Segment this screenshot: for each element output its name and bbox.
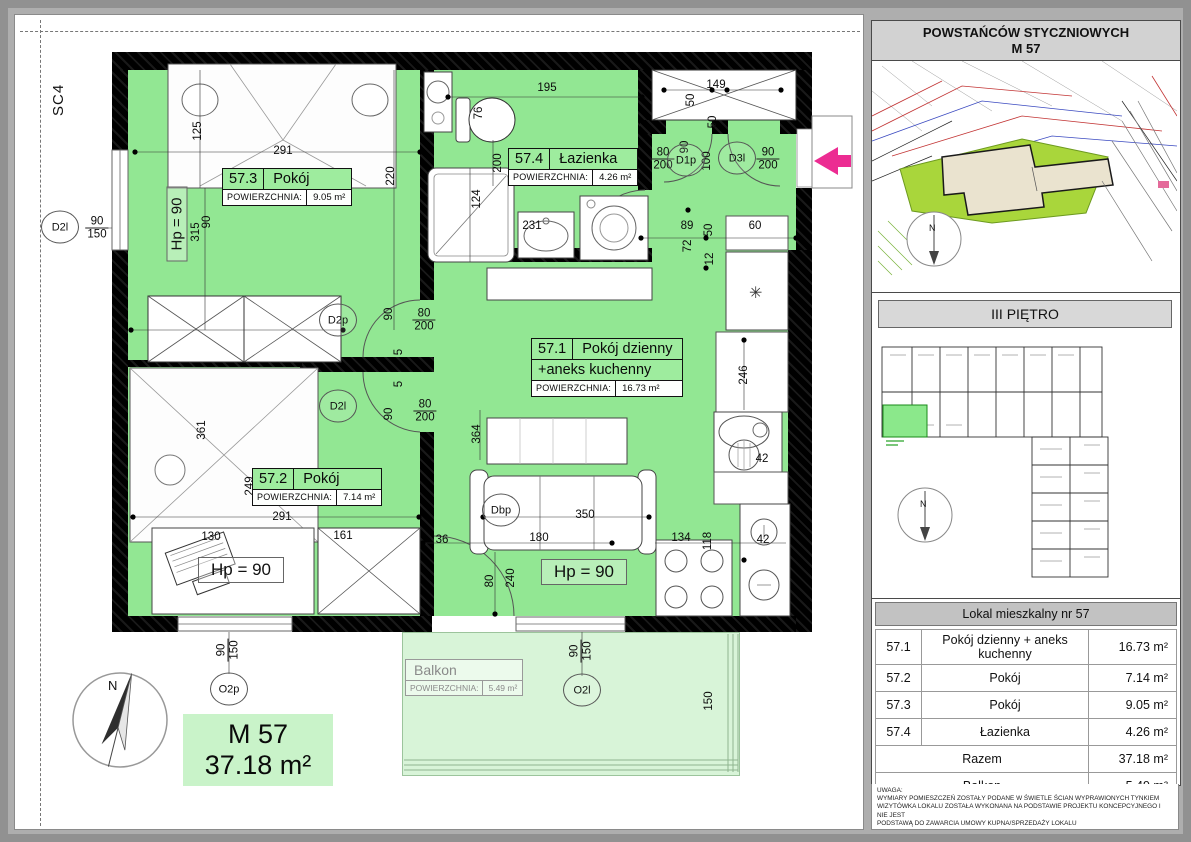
table-row: 57.1Pokój dzienny + aneks kuchenny16.73 … [875, 629, 1177, 665]
dimension-label: 150 [703, 691, 715, 710]
dimension-label: 50 [703, 224, 715, 237]
architectural-drawing-page: SC4 [0, 0, 1191, 842]
wall [640, 120, 666, 134]
row-area: 16.73 m² [1088, 630, 1176, 664]
floor-locator-panel: III PIĘTRO N [871, 292, 1181, 600]
row-name: Pokój [922, 665, 1088, 691]
notes-title: UWAGA: [877, 787, 1173, 795]
opening-tag-d2p: D2p [319, 304, 357, 337]
opening-tag-d2l: D2l [41, 211, 79, 244]
dimension-label: 90 [383, 308, 395, 321]
dimension-label: 231 [522, 220, 541, 232]
dimension-label: 80 [484, 575, 496, 588]
row-area: 7.14 m² [1088, 665, 1176, 691]
sidebar-title-panel: POWSTAŃCÓW STYCZNIOWYCH M 57 [871, 20, 1181, 62]
dimension-label: 291 [273, 145, 292, 157]
dimension-label: 161 [333, 530, 352, 542]
floor-compass-north-label: N [920, 499, 927, 509]
wall [112, 70, 128, 150]
dimension-label: 60 [749, 220, 762, 232]
dimension-label: 220 [385, 166, 397, 185]
room-label-57-1: 57.1Pokój dzienny+aneks kuchennyPOWIERZC… [531, 338, 683, 397]
table-summary-row: Razem37.18 m² [875, 746, 1177, 773]
balcony-area-label: POWIERZCHNIA: [406, 681, 482, 695]
dimension-label: 50 [685, 94, 697, 107]
wall [128, 360, 302, 367]
row-area: 37.18 m² [1088, 746, 1176, 772]
floor-plan-overview: N [872, 329, 1177, 595]
wall [780, 120, 812, 134]
wall [112, 250, 128, 632]
dimension-label: 149 [706, 79, 725, 91]
dimension-label: 90 [201, 216, 213, 229]
apartment-number: M 57 [1012, 41, 1041, 57]
room-id: 57.4 [509, 149, 550, 169]
balcony-name: Balkon [405, 659, 523, 681]
row-name: Pokój [922, 692, 1088, 718]
wall [788, 250, 812, 632]
room-area-value: 16.73 m² [615, 381, 666, 396]
wall [112, 616, 178, 632]
apartment-title-label: M 57 37.18 m² [183, 714, 333, 786]
dimension-label: 118 [702, 532, 714, 550]
dimension-label: 89 [681, 220, 694, 232]
row-id: 57.1 [876, 630, 922, 664]
opening-tag-o2l: O2l [563, 674, 601, 707]
sheet-margin-line-horizontal [20, 31, 860, 32]
dimension-label: 361 [196, 420, 208, 439]
dimension-label: 42 [757, 534, 770, 546]
row-id: 57.2 [876, 665, 922, 691]
dimension-label: 125 [192, 121, 204, 140]
room-id: 57.3 [223, 169, 264, 189]
dimension-label: 5 [393, 381, 405, 387]
dimension-label: 240 [505, 568, 517, 587]
dimension-label: 42 [756, 453, 769, 465]
room-name: Pokój [294, 469, 348, 489]
opening-tag-d3l: D3l [718, 142, 756, 175]
room-name: Łazienka [550, 149, 626, 169]
dimension-label: 134 [671, 532, 690, 544]
dimension-label: 200 [492, 153, 504, 172]
opening-tag-d2l: D2l [319, 390, 357, 423]
dimension-label: 195 [537, 82, 556, 94]
section-code-label: SC4 [50, 84, 67, 116]
row-area: 9.05 m² [1088, 692, 1176, 718]
room-name-line2: +aneks kuchenny [531, 360, 683, 381]
dimension-label: 364 [471, 424, 483, 443]
wall [300, 357, 434, 372]
row-id: 57.4 [876, 719, 922, 745]
balcony-area-value: 5.49 m² [482, 681, 522, 695]
row-id: 57.3 [876, 692, 922, 718]
opening-tag-dbp: Dbp [482, 494, 520, 527]
opening-tag-d1p: D1p [667, 144, 705, 177]
wall [420, 432, 434, 616]
dimension-label: 291 [272, 511, 291, 523]
table-row: 57.4Łazienka4.26 m² [875, 719, 1177, 746]
wall [292, 616, 432, 632]
room-id: 57.2 [253, 469, 294, 489]
sill-height-label: Hp = 90 [541, 559, 627, 585]
room-area-value: 9.05 m² [306, 190, 351, 205]
table-row: 57.2Pokój7.14 m² [875, 665, 1177, 692]
sill-height-label: Hp = 90 [167, 187, 188, 262]
dimension-label: 246 [738, 365, 750, 384]
wall [796, 188, 812, 250]
table-rows: 57.1Pokój dzienny + aneks kuchenny16.73 … [875, 629, 1177, 800]
wall [420, 70, 434, 300]
balcony-label: Balkon POWIERZCHNIA: 5.49 m² [405, 659, 523, 696]
row-name: Łazienka [922, 719, 1088, 745]
dimension-label: 80200 [412, 308, 435, 333]
dimension-label: 90150 [85, 216, 108, 241]
map-compass-north-label: N [929, 223, 936, 233]
wall [434, 248, 652, 262]
site-map-drawing: N [872, 61, 1177, 290]
dimension-label: 90150 [216, 638, 241, 661]
opening-tag-o2p: O2p [210, 673, 248, 706]
notes-lines: WYMIARY POMIESZCZEŃ ZOSTAŁY PODANE W ŚWI… [877, 795, 1173, 828]
dimension-label: 72 [682, 240, 694, 253]
dimension-label: 50 [707, 116, 719, 129]
dimension-label: 36 [436, 534, 449, 546]
sill-height-label: Hp = 90 [198, 557, 284, 583]
room-name: Pokój [264, 169, 318, 189]
room-area-label: POWIERZCHNIA: [253, 490, 336, 505]
dimension-label: 350 [575, 509, 594, 521]
dimension-label: 180 [529, 532, 548, 544]
room-label-57-3: 57.3PokójPOWIERZCHNIA:9.05 m² [222, 168, 352, 206]
row-name: Razem [876, 746, 1088, 772]
wall [625, 616, 796, 632]
room-area-label: POWIERZCHNIA: [223, 190, 306, 205]
row-name: Pokój dzienny + aneks kuchenny [922, 630, 1088, 664]
room-label-57-4: 57.4ŁazienkaPOWIERZCHNIA:4.26 m² [508, 148, 638, 186]
dimension-label: 124 [471, 189, 483, 208]
wall [112, 52, 812, 70]
room-area-label: POWIERZCHNIA: [509, 170, 592, 185]
room-name: Pokój dzienny [573, 339, 681, 359]
room-area-label: POWIERZCHNIA: [532, 381, 615, 396]
dimension-label: 5 [393, 349, 405, 355]
disclaimer-notes: UWAGA: WYMIARY POMIESZCZEŃ ZOSTAŁY PODAN… [871, 784, 1179, 830]
floor-label: III PIĘTRO [878, 300, 1172, 328]
room-label-57-2: 57.2PokójPOWIERZCHNIA:7.14 m² [252, 468, 382, 506]
dimension-label: 90 [383, 408, 395, 421]
notes-line: PODSTAWĄ DO ZAWARCIA UMOWY KUPNA/SPRZEDA… [877, 820, 1173, 828]
dimension-label: 12 [704, 253, 716, 266]
dimension-label: 90200 [756, 147, 779, 172]
row-area: 4.26 m² [1088, 719, 1176, 745]
dimension-label: 130 [201, 531, 220, 543]
table-row: 57.3Pokój9.05 m² [875, 692, 1177, 719]
notes-line: WIZYTÓWKA LOKALU ZOSTAŁA WYKONANA NA POD… [877, 803, 1173, 819]
room-id: 57.1 [532, 339, 573, 359]
room-area-table: Lokal mieszkalny nr 57 57.1Pokój dzienny… [871, 598, 1181, 786]
dimension-label: 80200 [413, 399, 436, 424]
site-map-panel: N [871, 60, 1181, 294]
dimension-label: 90150 [569, 639, 594, 662]
room-area-value: 4.26 m² [592, 170, 637, 185]
dimension-label: 315 [190, 222, 202, 241]
table-title: Lokal mieszkalny nr 57 [875, 602, 1177, 626]
apartment-total-area: 37.18 m² [205, 749, 312, 781]
apartment-code: M 57 [228, 719, 288, 749]
dimension-label: 76 [473, 107, 485, 120]
street-name: POWSTAŃCÓW STYCZNIOWYCH [923, 25, 1129, 41]
highlighted-unit [883, 405, 927, 437]
sheet-margin-line-vertical [40, 20, 41, 826]
room-area-value: 7.14 m² [336, 490, 381, 505]
